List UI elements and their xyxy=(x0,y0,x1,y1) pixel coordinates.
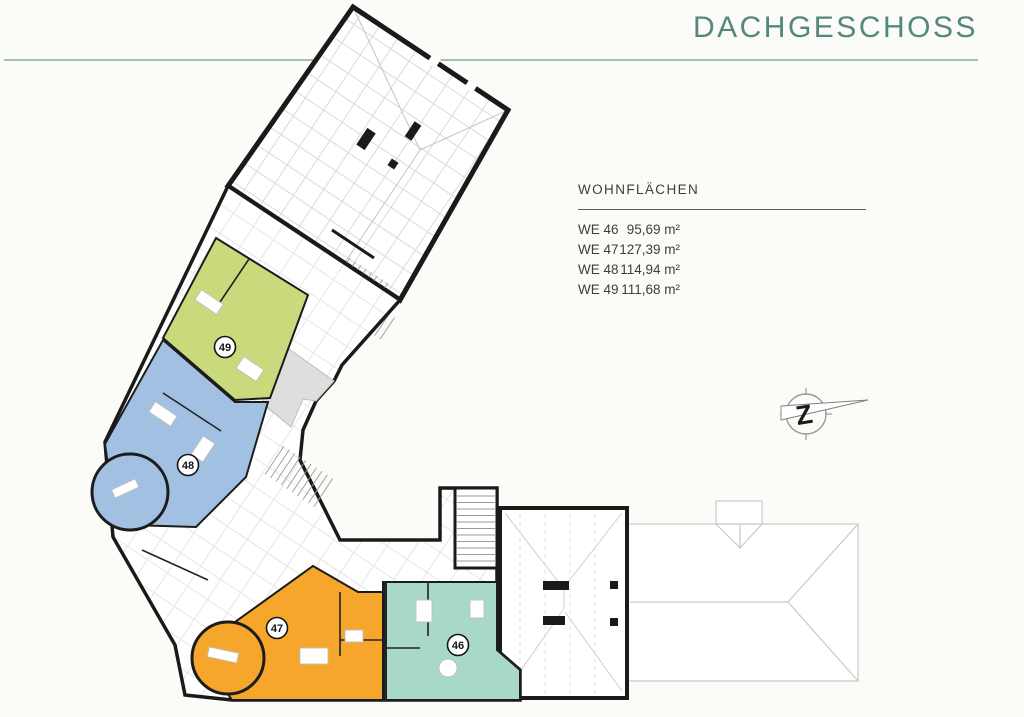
unit-badge-47: 47 xyxy=(267,618,288,639)
legend-unit-id: WE 48 xyxy=(578,260,619,280)
legend-title: WOHNFLÄCHEN xyxy=(578,182,866,197)
roof-outline xyxy=(628,501,858,681)
legend-unit-area: 111,68 m² xyxy=(621,280,680,300)
legend-unit-area: 114,94 m² xyxy=(620,260,680,280)
unit-badge-label: 47 xyxy=(271,623,283,635)
chimney xyxy=(543,581,569,590)
unit-badge-49: 49 xyxy=(215,337,236,358)
stair-shaft xyxy=(455,488,497,568)
north-arrow-icon: Z xyxy=(780,388,868,440)
legend-rule xyxy=(578,209,866,210)
legend-row: WE 47 127,39 m² xyxy=(578,240,680,260)
legend-unit-id: WE 49 xyxy=(578,280,619,300)
legend-unit-area: 127,39 m² xyxy=(619,240,680,260)
page-title: DACHGESCHOSS xyxy=(693,11,978,45)
unit-badge-46: 46 xyxy=(448,635,469,656)
legend-row: WE 48 114,94 m² xyxy=(578,260,680,280)
unit-48-tower xyxy=(92,454,168,530)
floor-plan: 46 47 48 49 Z xyxy=(0,0,1024,717)
brochure-page: 46 47 48 49 Z DACHGESCHOSS WOHNFLÄCHEN xyxy=(0,0,1024,717)
legend: WOHNFLÄCHEN WE 46 95,69 m² WE 47 127,39 … xyxy=(578,182,866,300)
legend-unit-area: 95,69 m² xyxy=(627,220,680,240)
legend-row: WE 49 111,68 m² xyxy=(578,280,680,300)
chimney xyxy=(543,616,565,625)
unit-badge-48: 48 xyxy=(178,455,199,476)
chimney xyxy=(610,581,618,589)
legend-unit-id: WE 47 xyxy=(578,240,619,260)
chimney xyxy=(610,618,618,626)
legend-row: WE 46 95,69 m² xyxy=(578,220,680,240)
unit-badge-label: 49 xyxy=(219,342,231,354)
unit-badge-label: 48 xyxy=(182,460,194,472)
legend-rows: WE 46 95,69 m² WE 47 127,39 m² WE 48 114… xyxy=(578,220,680,300)
unit-badge-label: 46 xyxy=(452,640,464,652)
legend-unit-id: WE 46 xyxy=(578,220,619,240)
